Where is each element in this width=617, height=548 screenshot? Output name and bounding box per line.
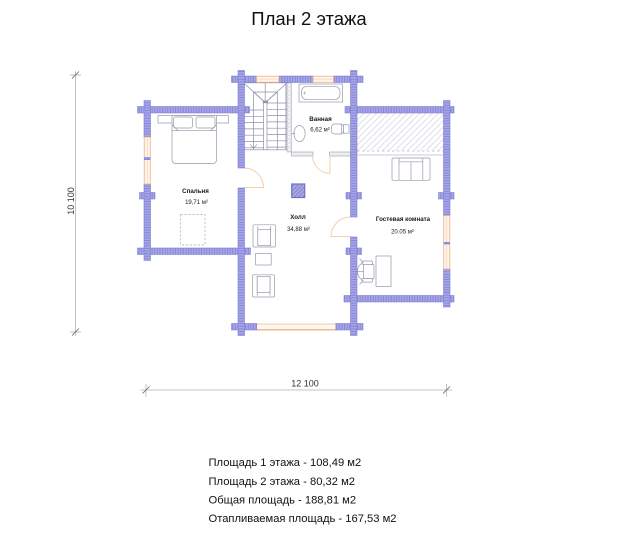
svg-text:Холл: Холл: [290, 214, 306, 221]
svg-text:10 100: 10 100: [66, 187, 76, 215]
svg-text:Отапливаемая площадь - 167,53: Отапливаемая площадь - 167,53 м2: [209, 513, 397, 525]
svg-text:20.05 м²: 20.05 м²: [391, 229, 414, 235]
svg-text:Гостевая комната: Гостевая комната: [376, 216, 431, 223]
svg-text:19,71 м²: 19,71 м²: [185, 200, 208, 206]
svg-text:Площадь 1 этажа - 108,49 м2: Площадь 1 этажа - 108,49 м2: [209, 457, 362, 469]
svg-text:Ванная: Ванная: [309, 116, 332, 123]
svg-text:34,88 м²: 34,88 м²: [287, 227, 310, 233]
svg-text:6,62 м²: 6,62 м²: [310, 127, 329, 133]
svg-text:Спальня: Спальня: [182, 188, 209, 195]
svg-text:План 2 этажа: План 2 этажа: [251, 8, 367, 29]
svg-text:Общая площадь - 188,81 м2: Общая площадь - 188,81 м2: [209, 495, 357, 507]
svg-text:Площадь 2 этажа - 80,32 м2: Площадь 2 этажа - 80,32 м2: [209, 476, 356, 488]
svg-text:12 100: 12 100: [291, 379, 319, 389]
